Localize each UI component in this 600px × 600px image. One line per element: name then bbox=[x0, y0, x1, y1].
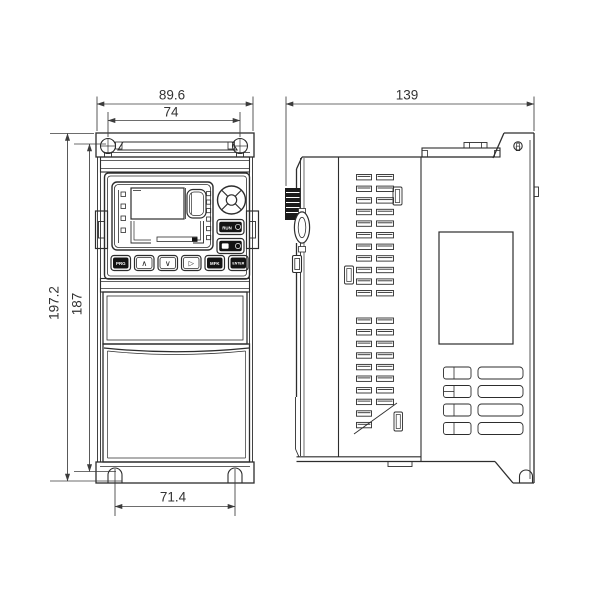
din-rail-hook bbox=[534, 187, 539, 197]
dim-bottom-hole-spacing: 71.4 bbox=[115, 469, 235, 516]
heatsink-diagonal-edge bbox=[354, 403, 397, 434]
dimension-annotations: 89.6 74 197.2 187 71.4 bbox=[47, 88, 535, 517]
mfk-button-label: MFK bbox=[210, 261, 220, 266]
top-collar-band bbox=[101, 157, 250, 172]
top-clip-bar bbox=[422, 143, 500, 158]
front-edge-clip bbox=[293, 256, 302, 273]
lcd-screen bbox=[131, 188, 184, 219]
dim-overall-height-label: 197.2 bbox=[47, 286, 62, 320]
middle-band bbox=[101, 279, 250, 293]
potentiometer-knob bbox=[187, 190, 206, 219]
dim-bottom-hole-spacing-label: 71.4 bbox=[160, 490, 187, 505]
prg-button: PRG bbox=[111, 256, 131, 271]
down-arrow-button: ∨ bbox=[158, 256, 178, 271]
lcd-display-assembly bbox=[112, 182, 213, 250]
bottom-latch-tab bbox=[388, 462, 412, 467]
dim-side-depth: 139 bbox=[286, 88, 534, 187]
status-led-column-left bbox=[121, 192, 126, 233]
vent-grid-lower bbox=[357, 318, 394, 428]
up-arrow-icon: ∧ bbox=[141, 259, 147, 268]
dim-mount-hole-height: 187 bbox=[70, 144, 117, 472]
mfk-button: MFK bbox=[205, 256, 225, 271]
small-slot-top bbox=[393, 187, 402, 205]
keypad-panel: RUN PRG ∧ bbox=[105, 173, 250, 279]
run-button-label: RUN bbox=[222, 226, 232, 231]
vent-grid-upper bbox=[357, 175, 394, 296]
enter-button: ENTER bbox=[229, 256, 249, 271]
dimension-drawing: RUN PRG ∧ bbox=[0, 0, 600, 600]
navigation-wheel bbox=[218, 186, 246, 214]
small-slot-bottom bbox=[394, 412, 403, 431]
terminal-cover-window bbox=[103, 292, 247, 344]
small-slot-middle bbox=[345, 266, 354, 284]
nameplate-label-area bbox=[439, 232, 513, 344]
keypad-button-row: PRG ∧ ∨ ▷ bbox=[111, 256, 248, 271]
run-button: RUN bbox=[217, 220, 244, 235]
side-view bbox=[285, 133, 539, 483]
enter-button-label: ENTER bbox=[232, 261, 244, 265]
dim-mount-hole-height-label: 187 bbox=[70, 293, 85, 316]
dim-side-depth-label: 139 bbox=[396, 88, 419, 103]
down-arrow-icon: ∨ bbox=[165, 259, 171, 268]
dim-top-hole-spacing: 74 bbox=[108, 105, 240, 138]
front-view: RUN PRG ∧ bbox=[96, 133, 259, 483]
dim-top-hole-spacing-label: 74 bbox=[163, 105, 179, 120]
prg-button-label: PRG bbox=[116, 261, 126, 266]
rear-bottom-slot bbox=[520, 470, 533, 483]
technical-drawing-canvas: RUN PRG ∧ bbox=[0, 0, 600, 600]
side-outline bbox=[296, 133, 539, 483]
top-mounting-plate bbox=[96, 133, 254, 157]
side-rails bbox=[98, 157, 253, 462]
status-led-column-right bbox=[207, 192, 211, 240]
keyhole-mount-right bbox=[228, 138, 248, 157]
display-corner-brackets bbox=[131, 221, 204, 243]
right-arrow-button: ▷ bbox=[182, 256, 202, 271]
keyhole-mount-left bbox=[100, 138, 122, 157]
right-arrow-icon: ▷ bbox=[189, 260, 195, 268]
stop-button bbox=[217, 239, 244, 254]
lower-front-cover bbox=[103, 344, 250, 462]
dim-front-overall-width-label: 89.6 bbox=[159, 88, 185, 103]
rear-slot-group bbox=[444, 367, 524, 435]
bottom-mounting-plate bbox=[96, 462, 254, 483]
up-arrow-button: ∧ bbox=[135, 256, 155, 271]
rear-keyhole-mount bbox=[514, 142, 522, 151]
